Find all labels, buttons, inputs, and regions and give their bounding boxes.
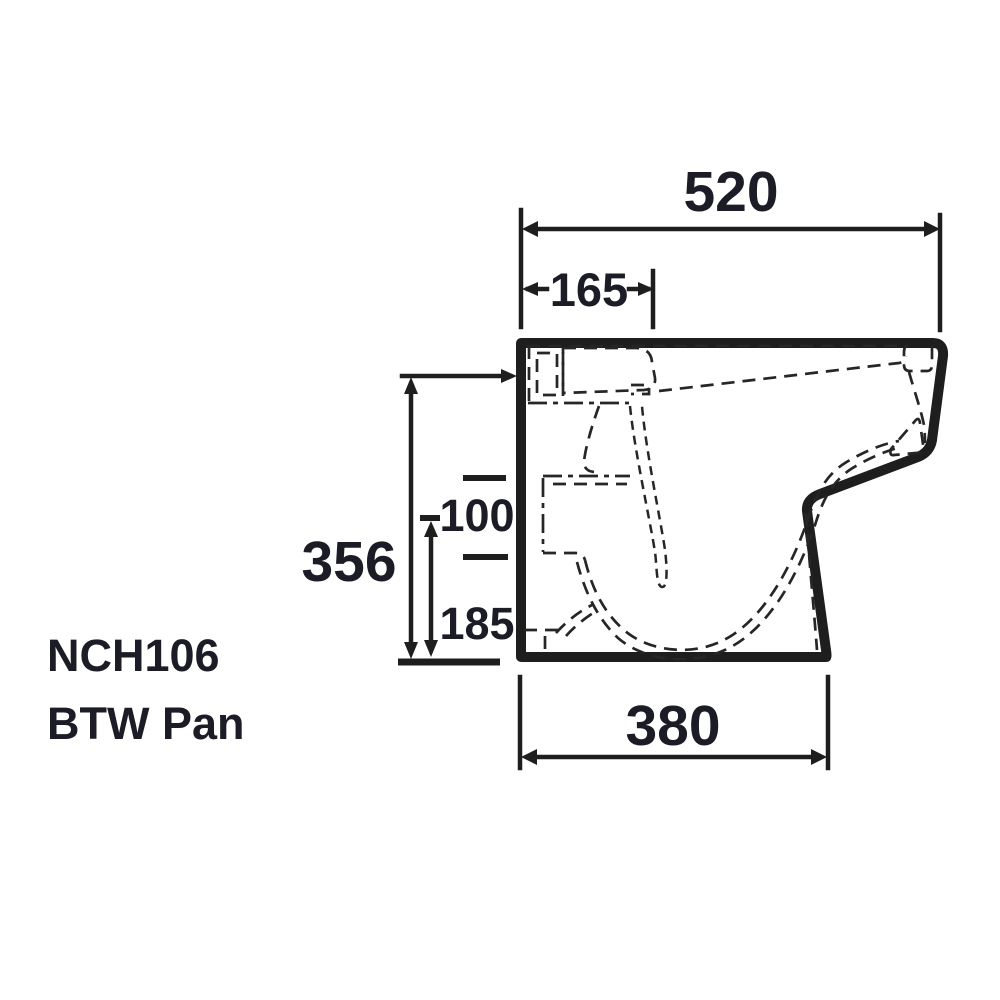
dim-pan-height-label: 356 (301, 530, 396, 594)
dim-380-arrow-left (521, 749, 537, 765)
dim-356-arrow-up (404, 377, 418, 394)
pan-outline (521, 343, 943, 657)
dim-380-arrow-right (811, 749, 827, 765)
rim-box-right (904, 345, 932, 371)
dim-base-depth-label: 380 (625, 694, 720, 758)
dim-base-depth: 380 (520, 677, 828, 768)
technical-drawing-sheet: 520 165 356 100 (0, 0, 1000, 1000)
dim-356-ref-arrow (501, 369, 517, 383)
dim-185-arrow-up (424, 521, 438, 537)
pan-side-elevation-drawing: 520 165 356 100 (0, 0, 1000, 1000)
sump-shelf (543, 553, 585, 560)
flush-inlet-box (537, 353, 557, 395)
dim-185-arrow-down (424, 640, 438, 657)
flush-channel (630, 406, 667, 587)
dim-outlet-height-label: 185 (439, 598, 514, 649)
funnel-left-line (584, 406, 599, 472)
pan-hidden-detail-lines (524, 345, 932, 659)
dim-outlet-spacing-label: 100 (439, 490, 514, 541)
dim-356-arrow-down (404, 642, 418, 659)
product-type-label: BTW Pan (47, 698, 245, 749)
dim-165-arrow-left (522, 282, 538, 296)
dim-cistern-offset-label: 165 (550, 263, 628, 316)
foot-diagonal-inner (566, 610, 598, 636)
dim-cistern-offset: 165 (522, 263, 654, 327)
rim-line (659, 356, 906, 391)
dim-520-arrow-right (924, 221, 940, 237)
dim-outlet-spacing: 100 (439, 478, 514, 557)
dim-overall-depth-label: 520 (683, 160, 778, 224)
product-model-label: NCH106 (47, 630, 220, 681)
trap-outer-curve (585, 441, 899, 650)
pan-outer-profile (521, 343, 943, 657)
dim-520-arrow-left (522, 221, 538, 237)
product-label: NCH106 BTW Pan (47, 630, 245, 749)
